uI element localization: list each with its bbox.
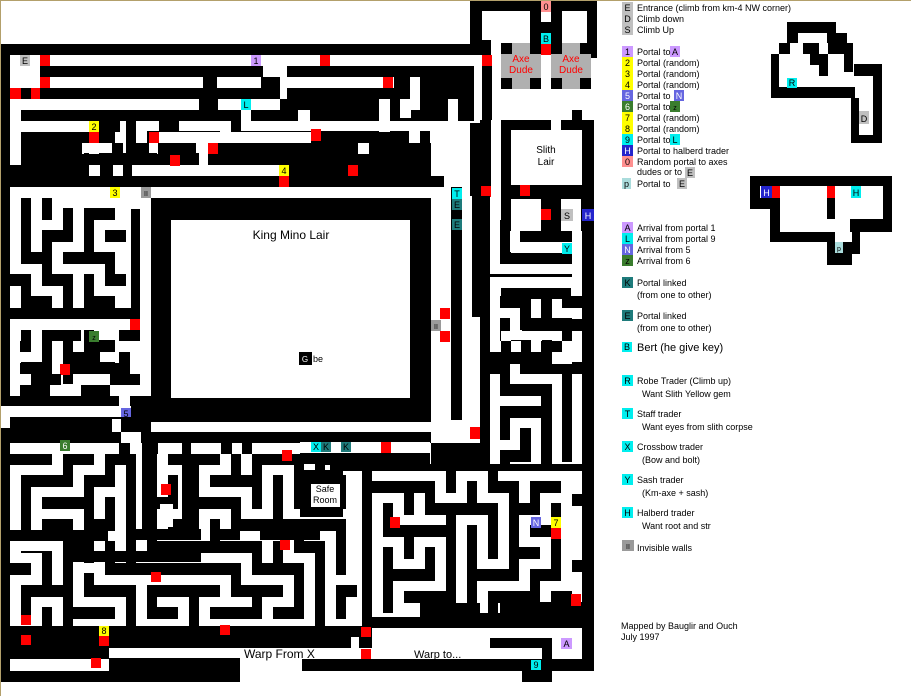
- svg-text:Portal to: Portal to: [637, 102, 671, 112]
- svg-text:R: R: [789, 78, 796, 88]
- svg-text:Want Slith Yellow gem: Want Slith Yellow gem: [642, 389, 731, 399]
- svg-text:Invisible walls: Invisible walls: [637, 543, 693, 553]
- svg-text:Axe: Axe: [512, 54, 530, 65]
- svg-text:5: 5: [625, 91, 630, 101]
- svg-text:2: 2: [91, 122, 96, 132]
- svg-text:A: A: [672, 47, 678, 57]
- svg-text:be: be: [313, 354, 323, 364]
- svg-text:3: 3: [625, 69, 630, 79]
- svg-text:E: E: [22, 56, 28, 66]
- svg-text:A: A: [624, 223, 630, 233]
- svg-text:July 1997: July 1997: [621, 632, 660, 642]
- svg-text:Entrance (climb from km-4 NW c: Entrance (climb from km-4 NW corner): [637, 3, 791, 13]
- svg-text:E: E: [454, 220, 460, 230]
- svg-text:z: z: [673, 105, 677, 112]
- svg-text:7: 7: [553, 518, 558, 528]
- svg-text:Portal linked: Portal linked: [637, 311, 687, 321]
- svg-text:(Bow and bolt): (Bow and bolt): [642, 455, 700, 465]
- svg-text:Lair: Lair: [538, 157, 555, 168]
- svg-text:Safe: Safe: [316, 484, 335, 494]
- svg-text:T: T: [454, 189, 460, 199]
- svg-text:H: H: [624, 508, 631, 518]
- svg-text:II: II: [144, 191, 148, 198]
- svg-text:0: 0: [543, 2, 548, 12]
- svg-text:B: B: [543, 34, 549, 44]
- svg-text:6: 6: [62, 441, 67, 451]
- svg-text:Climb Up: Climb Up: [637, 25, 674, 35]
- svg-text:Portal (random): Portal (random): [637, 58, 700, 68]
- svg-text:II: II: [626, 544, 630, 551]
- svg-text:Crossbow trader: Crossbow trader: [637, 442, 703, 452]
- svg-text:Dude: Dude: [559, 65, 583, 76]
- svg-text:Portal linked: Portal linked: [637, 278, 687, 288]
- svg-text:X: X: [624, 442, 630, 452]
- svg-text:(from one to other): (from one to other): [637, 290, 712, 300]
- svg-text:7: 7: [625, 113, 630, 123]
- svg-text:H: H: [585, 211, 592, 221]
- svg-text:3: 3: [112, 188, 117, 198]
- svg-text:E: E: [687, 168, 693, 178]
- svg-text:B: B: [624, 342, 630, 352]
- svg-text:Arrival from portal 9: Arrival from portal 9: [637, 234, 716, 244]
- svg-text:Portal to: Portal to: [637, 179, 671, 189]
- svg-text:Arrival from 5: Arrival from 5: [637, 245, 691, 255]
- svg-text:N: N: [676, 91, 683, 101]
- svg-text:Portal to: Portal to: [637, 135, 671, 145]
- svg-text:Dude: Dude: [509, 65, 533, 76]
- svg-text:dudes or to: dudes or to: [637, 167, 682, 177]
- svg-text:Staff trader: Staff trader: [637, 409, 681, 419]
- svg-text:Portal to: Portal to: [637, 47, 671, 57]
- svg-text:L: L: [625, 234, 630, 244]
- svg-text:L: L: [672, 135, 677, 145]
- svg-text:4: 4: [281, 166, 286, 176]
- svg-text:Want root and str: Want root and str: [642, 521, 711, 531]
- svg-text:Want eyes from slith corpse: Want eyes from slith corpse: [642, 422, 753, 432]
- svg-text:Warp to...: Warp to...: [414, 649, 461, 661]
- svg-text:X: X: [313, 442, 319, 452]
- svg-text:z: z: [625, 256, 630, 266]
- svg-text:Portal (random): Portal (random): [637, 124, 700, 134]
- svg-text:S: S: [624, 25, 630, 35]
- svg-text:H: H: [763, 188, 770, 198]
- svg-text:Portal (random): Portal (random): [637, 113, 700, 123]
- svg-text:Warp From X: Warp From X: [244, 647, 315, 661]
- svg-text:Axe: Axe: [562, 54, 580, 65]
- svg-text:p: p: [837, 246, 841, 253]
- svg-text:K: K: [323, 442, 329, 452]
- svg-text:II: II: [434, 324, 438, 331]
- svg-text:Portal to: Portal to: [637, 91, 671, 101]
- svg-text:E: E: [679, 179, 685, 189]
- svg-text:N: N: [624, 245, 631, 255]
- svg-text:R: R: [624, 376, 631, 386]
- svg-text:Bert (he give key): Bert (he give key): [637, 342, 723, 354]
- svg-text:(from one to other): (from one to other): [637, 323, 712, 333]
- svg-text:1: 1: [625, 47, 630, 57]
- svg-text:E: E: [454, 200, 460, 210]
- svg-text:T: T: [625, 409, 631, 419]
- svg-text:N: N: [533, 518, 540, 528]
- svg-text:8: 8: [625, 124, 630, 134]
- svg-text:Sash trader: Sash trader: [637, 475, 684, 485]
- svg-text:D: D: [861, 114, 868, 124]
- svg-text:L: L: [243, 100, 248, 110]
- svg-text:0: 0: [625, 157, 630, 167]
- svg-text:5: 5: [123, 409, 128, 419]
- svg-text:Mapped by Bauglir and Ouch: Mapped by Bauglir and Ouch: [621, 621, 738, 631]
- svg-text:Y: Y: [624, 475, 630, 485]
- svg-text:Slith: Slith: [536, 145, 555, 156]
- svg-text:Robe Trader (Climb up): Robe Trader (Climb up): [637, 376, 731, 386]
- svg-text:Portal to halberd trader: Portal to halberd trader: [637, 146, 729, 156]
- svg-text:Climb down: Climb down: [637, 14, 684, 24]
- svg-text:Halberd trader: Halberd trader: [637, 508, 695, 518]
- svg-text:H: H: [853, 188, 860, 198]
- svg-text:H: H: [624, 146, 631, 156]
- svg-text:Arrival from 6: Arrival from 6: [637, 256, 691, 266]
- svg-text:A: A: [563, 639, 569, 649]
- svg-text:King Mino Lair: King Mino Lair: [253, 228, 330, 242]
- svg-text:2: 2: [625, 58, 630, 68]
- svg-text:E: E: [624, 311, 630, 321]
- svg-text:Y: Y: [564, 244, 570, 254]
- svg-text:Random portal to axes: Random portal to axes: [637, 157, 728, 167]
- svg-text:Arrival from portal 1: Arrival from portal 1: [637, 223, 716, 233]
- svg-text:1: 1: [253, 56, 258, 66]
- svg-text:D: D: [624, 14, 631, 24]
- svg-text:S: S: [564, 211, 570, 221]
- svg-text:G: G: [302, 355, 308, 364]
- svg-text:8: 8: [101, 626, 106, 636]
- svg-text:6: 6: [625, 102, 630, 112]
- svg-text:K: K: [624, 278, 630, 288]
- svg-text:z: z: [92, 335, 96, 342]
- svg-text:K: K: [343, 442, 349, 452]
- svg-text:4: 4: [625, 80, 630, 90]
- svg-text:Room: Room: [313, 495, 337, 505]
- svg-text:9: 9: [625, 135, 630, 145]
- svg-text:p: p: [624, 179, 629, 189]
- svg-text:Portal (random): Portal (random): [637, 69, 700, 79]
- svg-text:(Km-axe + sash): (Km-axe + sash): [642, 488, 708, 498]
- svg-text:Portal (random): Portal (random): [637, 80, 700, 90]
- svg-text:9: 9: [533, 660, 538, 670]
- svg-text:E: E: [624, 3, 630, 13]
